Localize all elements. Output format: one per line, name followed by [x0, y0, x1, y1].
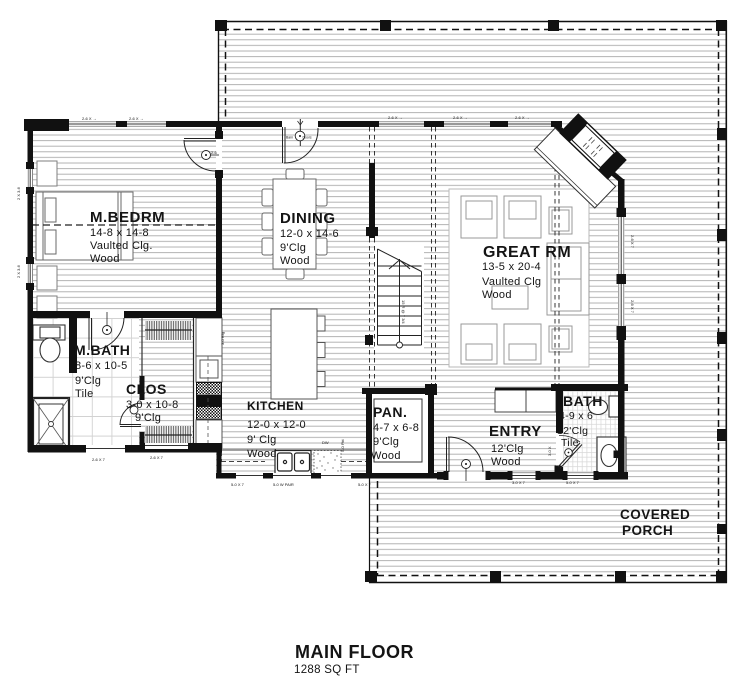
- svg-text:2-6 X →: 2-6 X →: [453, 115, 468, 120]
- svg-text:Wood: Wood: [280, 255, 310, 267]
- svg-text:CLOS: CLOS: [126, 381, 167, 397]
- svg-text:DW: DW: [322, 440, 329, 445]
- svg-text:1288 SQ FT: 1288 SQ FT: [294, 664, 360, 676]
- svg-text:14-8 x 14-8: 14-8 x 14-8: [90, 227, 149, 239]
- svg-text:3-0 Rfg: 3-0 Rfg: [220, 332, 225, 345]
- svg-text:9'Clg: 9'Clg: [373, 436, 399, 448]
- svg-text:Vaulted Clg.: Vaulted Clg.: [90, 240, 153, 252]
- svg-text:ENTRY: ENTRY: [489, 423, 542, 440]
- svg-text:2 X 3-6: 2 X 3-6: [16, 264, 21, 278]
- svg-text:2 X 3-6: 2 X 3-6: [16, 186, 21, 200]
- svg-text:5-0 X 7: 5-0 X 7: [358, 482, 372, 487]
- svg-text:2-6 X →: 2-6 X →: [388, 115, 403, 120]
- svg-text:2-6: 2-6: [211, 150, 218, 155]
- svg-text:12-0 x 14-6: 12-0 x 14-6: [280, 228, 339, 240]
- svg-text:5-0 W PAIR: 5-0 W PAIR: [273, 482, 294, 487]
- svg-text:9'Clg: 9'Clg: [135, 412, 161, 424]
- svg-text:2-6 X 7: 2-6 X 7: [630, 300, 635, 314]
- svg-text:9'Clg: 9'Clg: [75, 375, 101, 387]
- svg-text:2-6 X 7: 2-6 X 7: [92, 457, 106, 462]
- svg-text:M.BATH: M.BATH: [74, 342, 130, 358]
- svg-text:Tile: Tile: [561, 437, 579, 449]
- svg-text:12-0 x 12-0: 12-0 x 12-0: [247, 419, 306, 431]
- svg-text:PAN.: PAN.: [373, 404, 407, 420]
- svg-text:2-6 X →: 2-6 X →: [129, 116, 144, 121]
- svg-text:Barn: Barn: [286, 136, 293, 140]
- svg-text:Wood: Wood: [247, 448, 277, 460]
- svg-text:9' Clg: 9' Clg: [247, 434, 277, 446]
- svg-text:4-7 x 6-8: 4-7 x 6-8: [373, 422, 419, 434]
- svg-text:MAIN FLOOR: MAIN FLOOR: [295, 642, 414, 662]
- svg-text:13-5 x 20-4: 13-5 x 20-4: [482, 261, 541, 273]
- svg-text:5-0 Pkt: 5-0 Pkt: [340, 438, 345, 452]
- svg-text:5-0 X 7: 5-0 X 7: [231, 482, 245, 487]
- svg-text:2-6 X →: 2-6 X →: [82, 116, 97, 121]
- svg-text:3-0 x 10-8: 3-0 x 10-8: [126, 399, 179, 411]
- svg-text:3-0 X: 3-0 X: [547, 446, 552, 456]
- svg-text:9'Clg: 9'Clg: [280, 242, 306, 254]
- svg-text:12'Clg: 12'Clg: [557, 425, 588, 437]
- svg-text:Vaulted Clg: Vaulted Clg: [482, 276, 541, 288]
- svg-text:3-0 X 7: 3-0 X 7: [512, 480, 526, 485]
- svg-text:Doors: Doors: [303, 136, 312, 140]
- svg-text:4-9 x 6: 4-9 x 6: [559, 410, 593, 422]
- svg-text:COVERED: COVERED: [620, 507, 690, 522]
- svg-text:GREAT RM: GREAT RM: [483, 244, 571, 261]
- svg-text:8-6 x 10-5: 8-6 x 10-5: [75, 360, 128, 372]
- svg-text:BATH: BATH: [563, 393, 603, 409]
- svg-text:Wood: Wood: [491, 456, 521, 468]
- svg-text:Wood: Wood: [482, 289, 512, 301]
- svg-text:12'Clg: 12'Clg: [491, 443, 524, 455]
- svg-text:15 R @ 7 3/4: 15 R @ 7 3/4: [401, 300, 406, 324]
- svg-text:Wood: Wood: [90, 253, 120, 265]
- svg-text:2-6 X 7: 2-6 X 7: [150, 455, 164, 460]
- svg-text:KITCHEN: KITCHEN: [247, 399, 304, 413]
- svg-text:Tile: Tile: [75, 388, 94, 400]
- svg-text:5-0 X 7: 5-0 X 7: [566, 480, 580, 485]
- svg-text:PORCH: PORCH: [622, 523, 673, 538]
- svg-text:2-6 X 7: 2-6 X 7: [630, 235, 635, 249]
- svg-text:Wood: Wood: [371, 450, 401, 462]
- svg-text:DINING: DINING: [280, 210, 336, 227]
- svg-text:M.BEDRM: M.BEDRM: [90, 209, 165, 226]
- svg-text:2-6 X →: 2-6 X →: [515, 115, 530, 120]
